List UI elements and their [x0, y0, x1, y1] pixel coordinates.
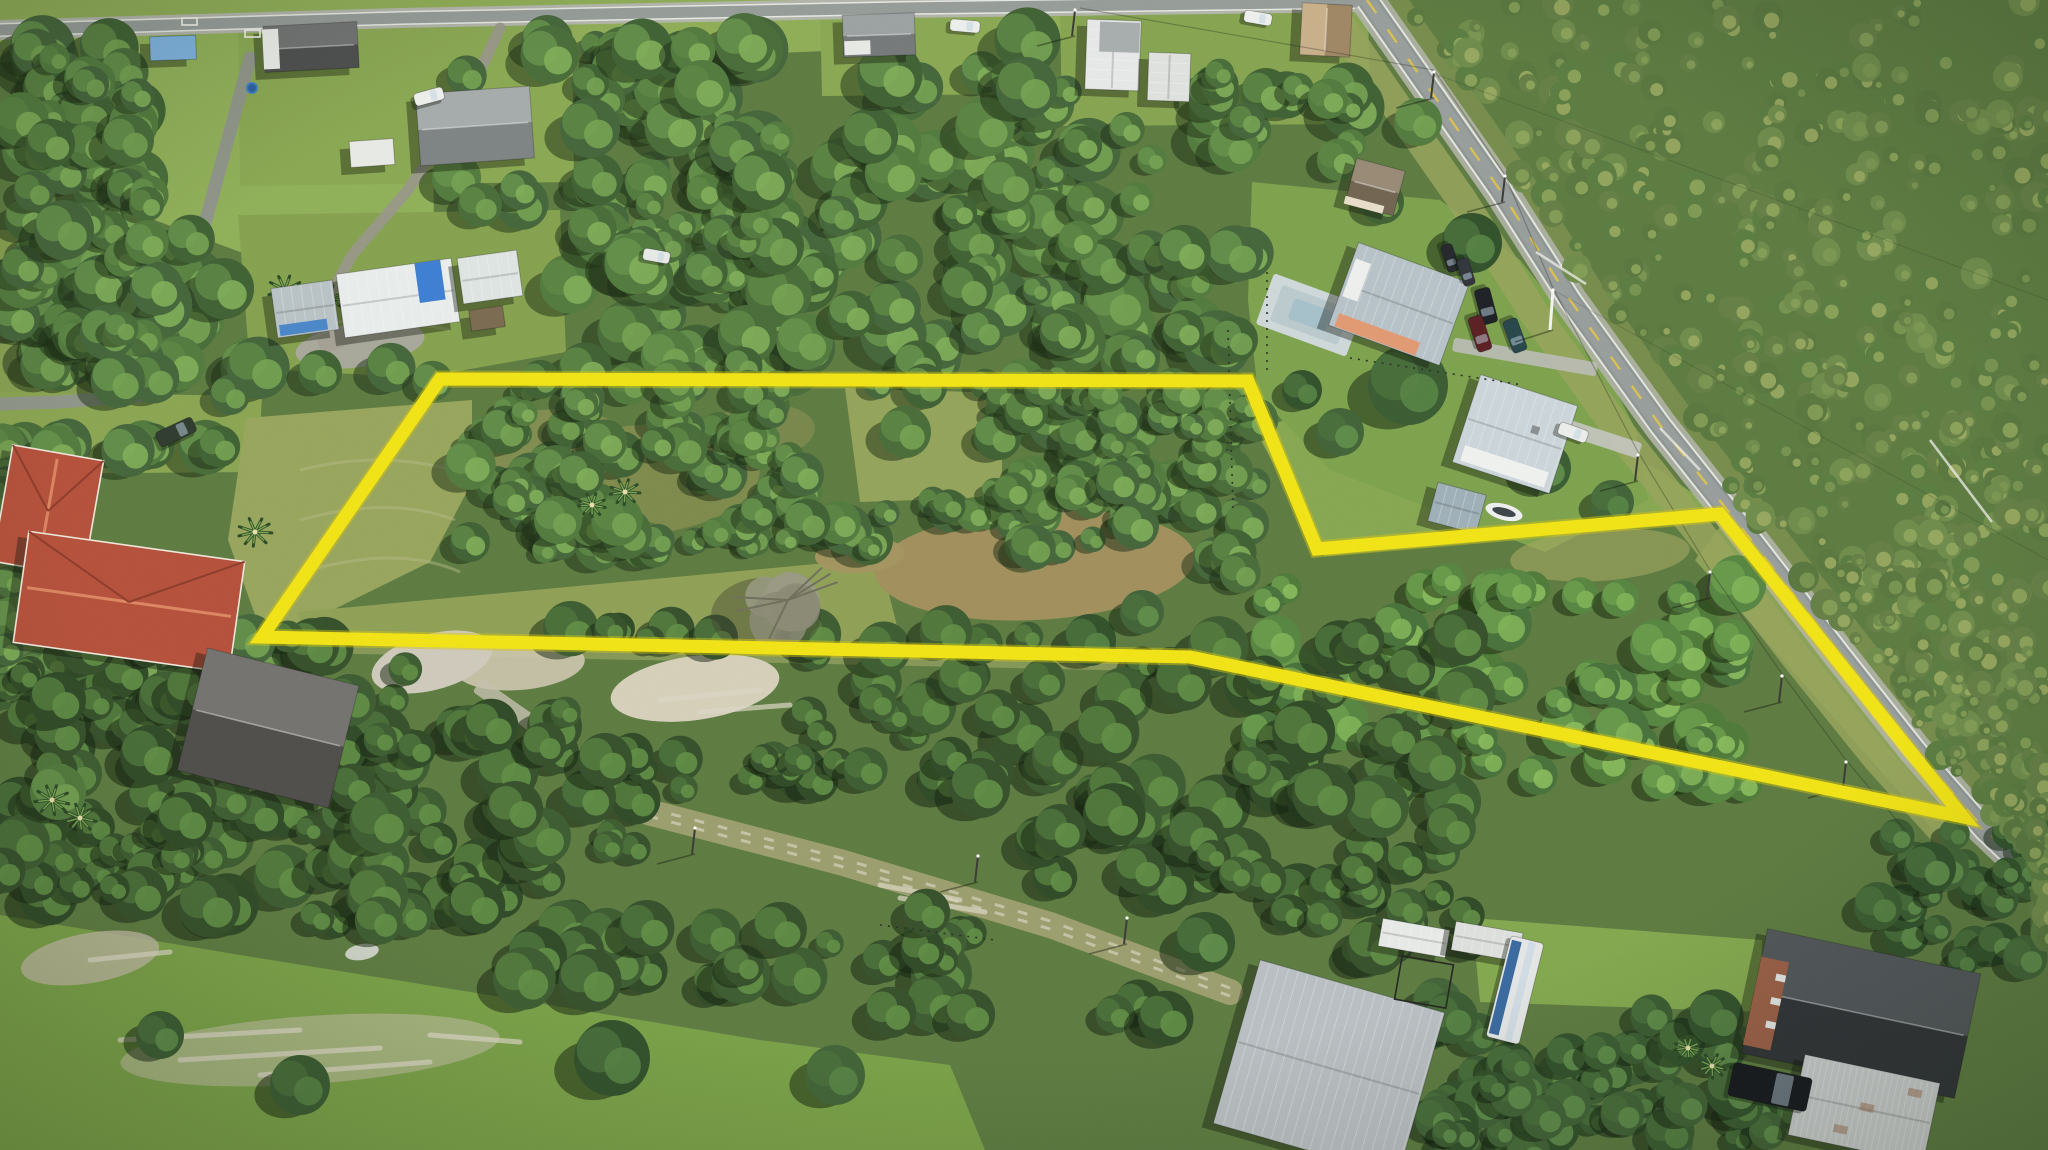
- aerial-photo-canvas: [0, 0, 2048, 1150]
- aerial-property-photo: [0, 0, 2048, 1150]
